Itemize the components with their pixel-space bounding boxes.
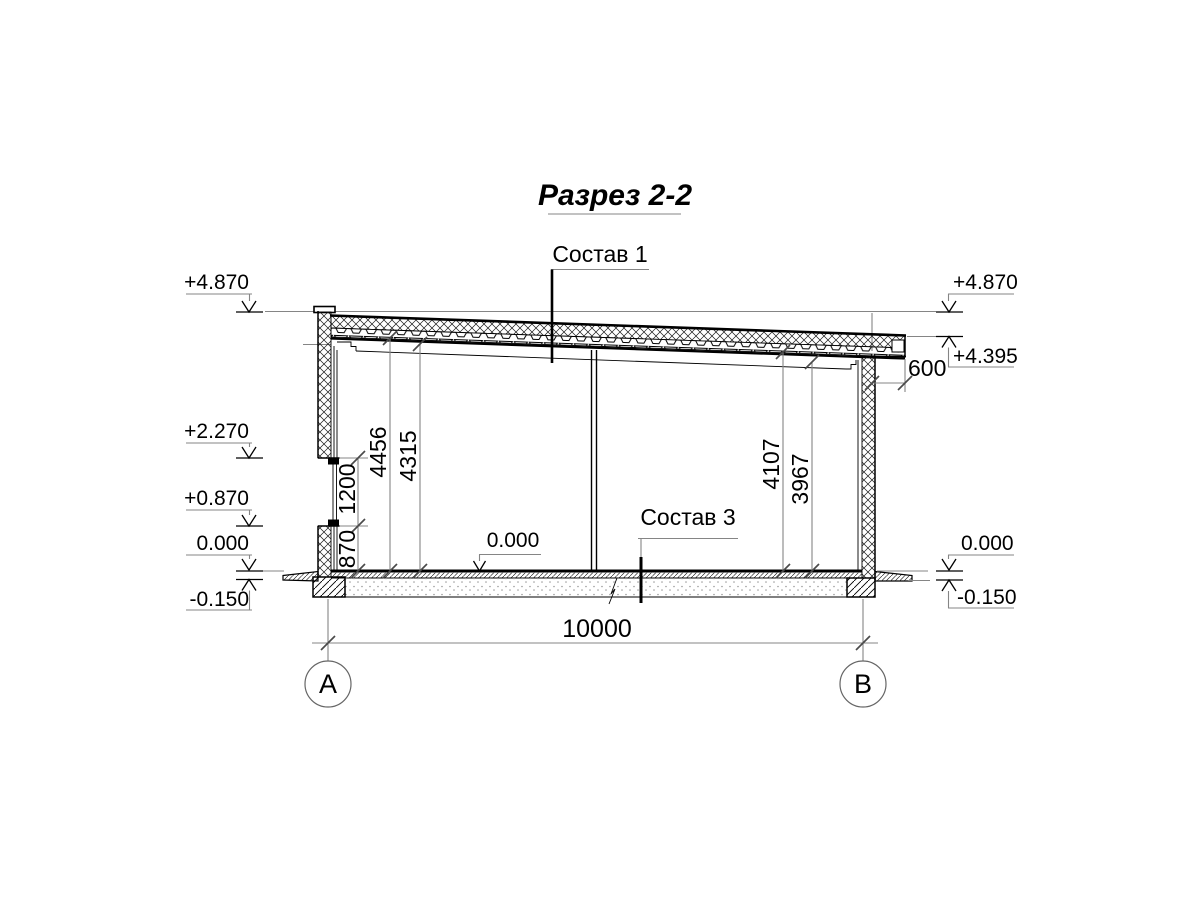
elevation-value: +0.870 xyxy=(184,487,249,510)
drawing-sheet: Разрез 2-2 xyxy=(0,0,1200,900)
dim-10000: 10000 xyxy=(562,615,632,643)
axis-label-A: А xyxy=(319,669,337,699)
dim-4107: 4107 xyxy=(758,438,784,489)
elevation-value: -0.150 xyxy=(189,588,249,611)
right-wall-masonry xyxy=(862,357,875,578)
elevation-value: +4.395 xyxy=(953,345,1018,368)
window-frame-bottom xyxy=(328,520,339,527)
eave-end-block xyxy=(892,340,904,352)
floor-base-layer xyxy=(345,578,847,597)
left-wall-upper-masonry xyxy=(318,312,331,458)
elevation-value: -0.150 xyxy=(957,586,1017,609)
floor-composition-label: Состав 3 xyxy=(640,504,735,530)
elevation-value: +4.870 xyxy=(953,271,1018,294)
paper-background xyxy=(0,0,1200,900)
drawing-title-block: Разрез 2-2 xyxy=(538,179,692,214)
foundation-right xyxy=(847,578,875,597)
dim-4315: 4315 xyxy=(395,430,421,481)
elevation-value: 0.000 xyxy=(196,532,249,555)
elevation-value: +2.270 xyxy=(184,420,249,443)
axis-label-B: В xyxy=(854,669,872,699)
elevation-value: 0.000 xyxy=(961,532,1014,555)
elevation-value: +4.870 xyxy=(184,271,249,294)
dim-1200: 1200 xyxy=(334,463,360,514)
dim-4456: 4456 xyxy=(365,426,391,477)
section-drawing-2-2: Разрез 2-2 xyxy=(0,0,1200,900)
floor-screed-layer xyxy=(331,573,862,578)
roof-composition-label: Состав 1 xyxy=(552,241,647,267)
left-wall-lower-masonry xyxy=(318,526,331,577)
dim-870: 870 xyxy=(334,530,360,568)
floor-level-label: 0.000 xyxy=(487,529,540,552)
dim-3967: 3967 xyxy=(787,453,813,504)
drawing-title: Разрез 2-2 xyxy=(538,179,692,212)
dim-600: 600 xyxy=(908,355,946,381)
